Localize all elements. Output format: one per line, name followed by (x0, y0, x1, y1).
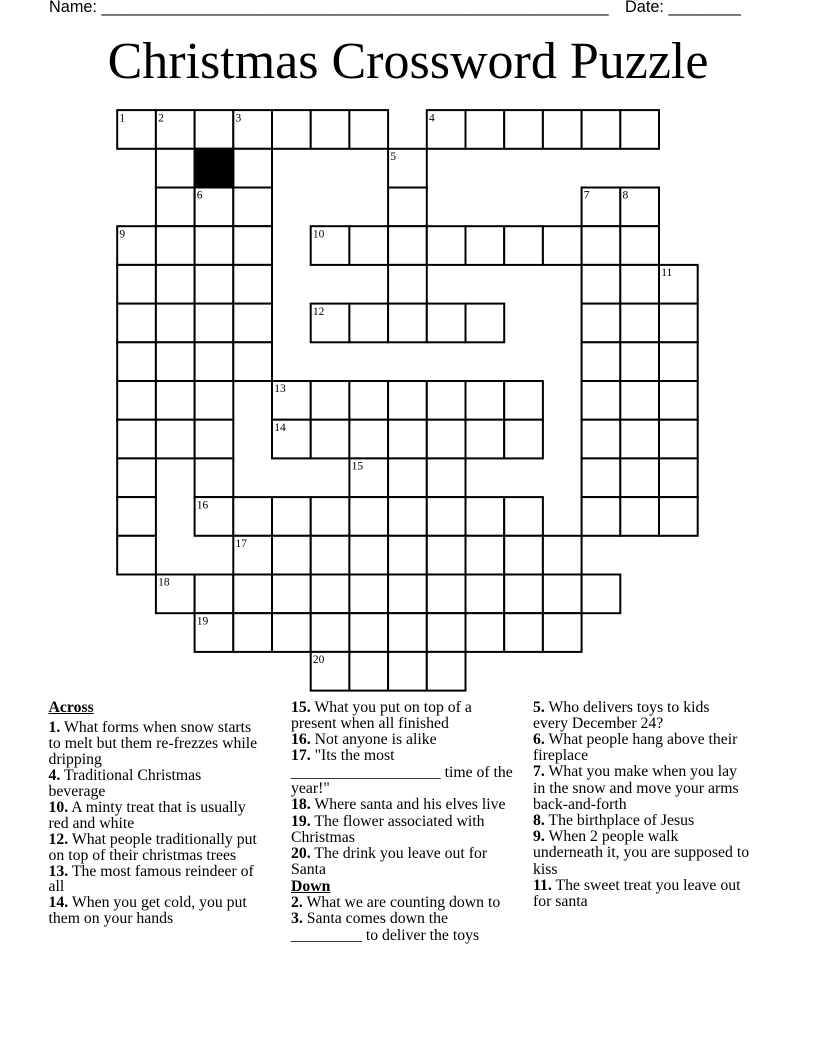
svg-text:5: 5 (390, 151, 396, 163)
svg-text:3: 3 (236, 112, 242, 124)
svg-text:2: 2 (158, 112, 164, 124)
svg-text:17: 17 (236, 538, 248, 550)
svg-text:8: 8 (623, 190, 629, 202)
svg-text:18: 18 (158, 577, 170, 589)
svg-text:1: 1 (119, 112, 125, 124)
svg-text:7: 7 (584, 190, 590, 202)
svg-text:9: 9 (119, 228, 125, 240)
svg-text:10: 10 (313, 228, 325, 240)
svg-text:15: 15 (352, 461, 364, 473)
svg-text:14: 14 (274, 422, 286, 434)
svg-text:4: 4 (429, 112, 435, 124)
svg-text:12: 12 (313, 306, 325, 318)
svg-text:20: 20 (313, 654, 325, 666)
svg-text:19: 19 (197, 615, 209, 627)
svg-text:13: 13 (274, 383, 286, 395)
svg-text:11: 11 (661, 267, 672, 279)
svg-text:6: 6 (197, 190, 203, 202)
svg-text:16: 16 (197, 499, 209, 511)
